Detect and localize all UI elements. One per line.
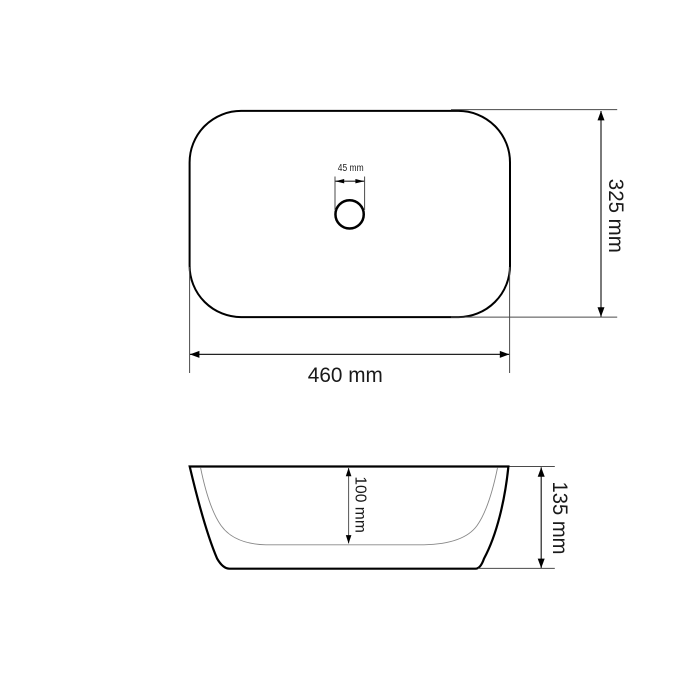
svg-text:45 mm: 45 mm: [338, 163, 364, 174]
svg-text:135 mm: 135 mm: [548, 482, 572, 555]
svg-text:460 mm: 460 mm: [308, 363, 383, 387]
svg-text:325 mm: 325 mm: [604, 179, 628, 253]
svg-text:100 mm: 100 mm: [351, 476, 368, 532]
